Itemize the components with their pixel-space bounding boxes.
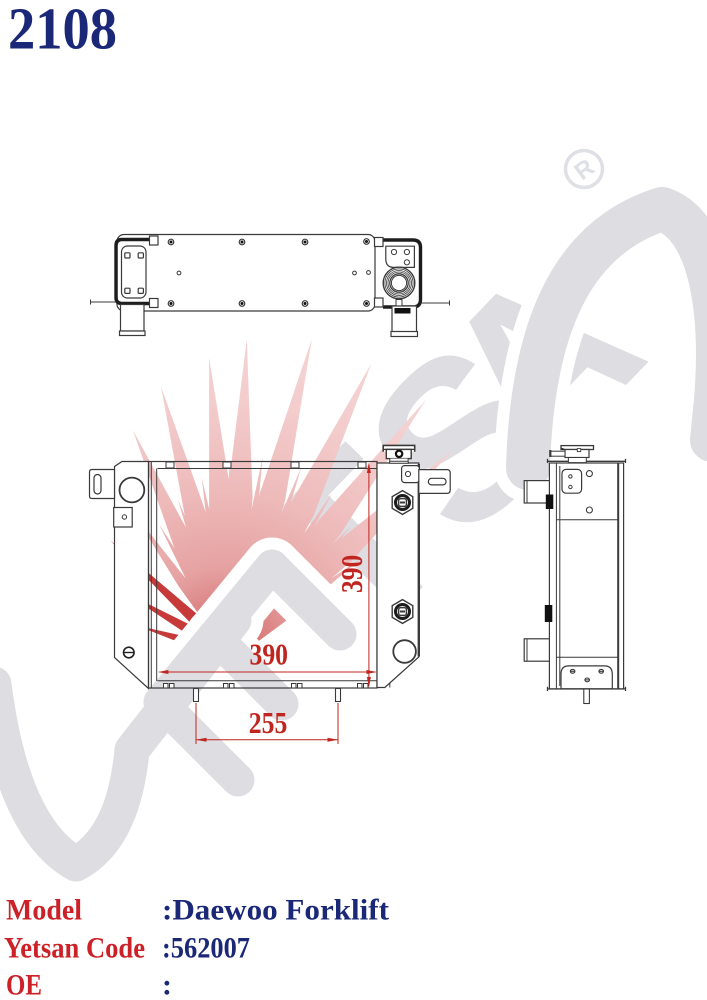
svg-text::Daewoo Forklift: :Daewoo Forklift [162, 894, 389, 927]
svg-text:390: 390 [250, 637, 289, 672]
svg-text:390: 390 [334, 555, 369, 593]
svg-text:Yetsan Code: Yetsan Code [4, 932, 145, 965]
svg-text::: : [162, 969, 172, 1000]
svg-text:2108: 2108 [8, 0, 117, 62]
svg-text:OE: OE [6, 969, 42, 1000]
svg-text:Model: Model [6, 894, 82, 927]
svg-text:255: 255 [249, 705, 287, 740]
svg-text:R: R [570, 154, 600, 186]
svg-text::562007: :562007 [162, 932, 250, 965]
